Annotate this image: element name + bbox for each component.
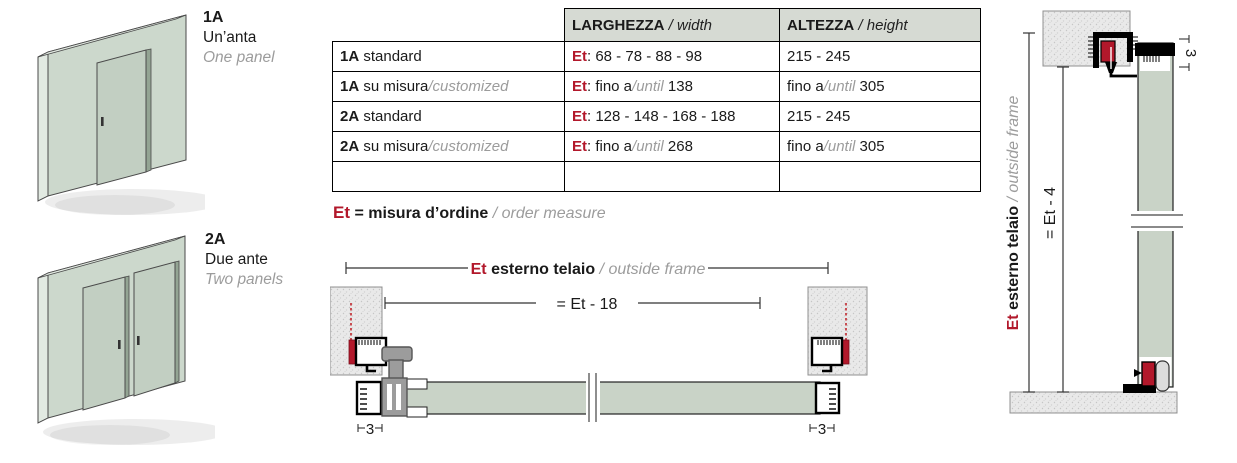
height-cell: 215 - 245 — [780, 102, 981, 132]
one-panel-label: 1A Un’anta One panel — [203, 8, 275, 68]
row-label: 2A su misura/customized — [333, 132, 565, 162]
two-panels-label: 2A Due ante Two panels — [205, 230, 283, 290]
panel-code: 1A — [203, 8, 275, 28]
track-roller-carriage — [1101, 41, 1115, 62]
section-outer-dimension-label: Et esterno telaio / outside frame — [1005, 96, 1022, 331]
panel-name-it: Un’anta — [203, 28, 275, 48]
vertical-section-drawing: Et esterno telaio / outside frame = Et -… — [1005, 5, 1237, 460]
width-cell: Et: fino a/until 138 — [565, 72, 780, 102]
et-symbol: Et — [333, 203, 350, 222]
height-cell: fino a/until 305 — [780, 72, 981, 102]
door-right-edge — [175, 261, 179, 383]
guide-block — [1142, 362, 1155, 386]
door-left-edge — [125, 276, 129, 398]
pull-handle-profile — [382, 347, 412, 416]
guide-wheel — [1156, 361, 1169, 391]
col-header-height: ALTEZZA / height — [780, 9, 981, 42]
door-right-handle — [137, 336, 140, 345]
door-hanger-bracket — [1135, 43, 1175, 56]
break-gap — [1131, 211, 1183, 231]
svg-text:3: 3 — [1182, 49, 1199, 57]
section-inner-dimension-label: = Et - 4 — [1042, 187, 1059, 239]
wall-edge — [38, 273, 48, 423]
width-cell: Et: fino a/until 268 — [565, 132, 780, 162]
header-wall-section — [1043, 11, 1130, 66]
row-label: 1A standard — [333, 42, 565, 72]
row-label: 1A su misura/customized — [333, 72, 565, 102]
wall-edge — [38, 52, 48, 201]
width-cell: Et: 128 - 148 - 168 - 188 — [565, 102, 780, 132]
catalog-page: 1A Un’anta One panel 2A Due ante Two pan… — [0, 0, 1237, 463]
one-panel-illustration — [15, 5, 205, 220]
table-row: 1A su misura/customized Et: fino a/until… — [333, 72, 981, 102]
table-row: 2A standard Et: 128 - 148 - 168 - 188 21… — [333, 102, 981, 132]
width-cell: Et: 68 - 78 - 88 - 98 — [565, 42, 780, 72]
door-panel-section — [357, 347, 839, 422]
floor-section — [1010, 392, 1177, 413]
table-header-row: LARGHEZZA / width ALTEZZA / height — [333, 9, 981, 42]
panel-name-en: One panel — [203, 48, 275, 68]
door-left-handle — [118, 340, 121, 349]
break-gap — [586, 376, 600, 420]
door-panel — [97, 50, 146, 185]
blank-header-cell — [333, 9, 565, 42]
section-outer-dimension — [1023, 33, 1035, 392]
height-cell: fino a/until 305 — [780, 132, 981, 162]
col-header-width: LARGHEZZA / width — [565, 9, 780, 42]
two-panels-illustration — [15, 228, 215, 453]
plan-left-3-dimension: 3 — [358, 421, 382, 438]
width-cell — [565, 162, 780, 192]
plan-right-3-dimension: 3 — [810, 421, 834, 438]
plan-section-drawing: Et esterno telaio / outside frame = Et -… — [330, 252, 878, 452]
table-row-empty — [333, 162, 981, 192]
section-top-3-dimension: 3 — [1179, 35, 1199, 71]
floor-guide — [1123, 357, 1172, 393]
table-row: 1A standard Et: 68 - 78 - 88 - 98 215 - … — [333, 42, 981, 72]
row-label: 2A standard — [333, 102, 565, 132]
panel-code: 2A — [205, 230, 283, 250]
plan-outer-dimension-label: Et esterno telaio / outside frame — [471, 261, 706, 278]
height-cell: 215 - 245 — [780, 42, 981, 72]
panel-name-en: Two panels — [205, 270, 283, 290]
order-measure-legend: Et = misura d’ordine / order measure — [333, 203, 606, 223]
door-right-panel — [134, 262, 175, 396]
sizes-table: LARGHEZZA / width ALTEZZA / height 1A st… — [332, 8, 981, 192]
row-label — [333, 162, 565, 192]
svg-text:3: 3 — [818, 421, 826, 438]
door-handle — [101, 117, 104, 126]
svg-text:3: 3 — [366, 421, 374, 438]
panel-name-it: Due ante — [205, 250, 283, 270]
door-edge — [146, 49, 151, 172]
table-row: 2A su misura/customized Et: fino a/until… — [333, 132, 981, 162]
height-cell — [780, 162, 981, 192]
plan-inner-dimension-label: = Et - 18 — [557, 296, 618, 313]
